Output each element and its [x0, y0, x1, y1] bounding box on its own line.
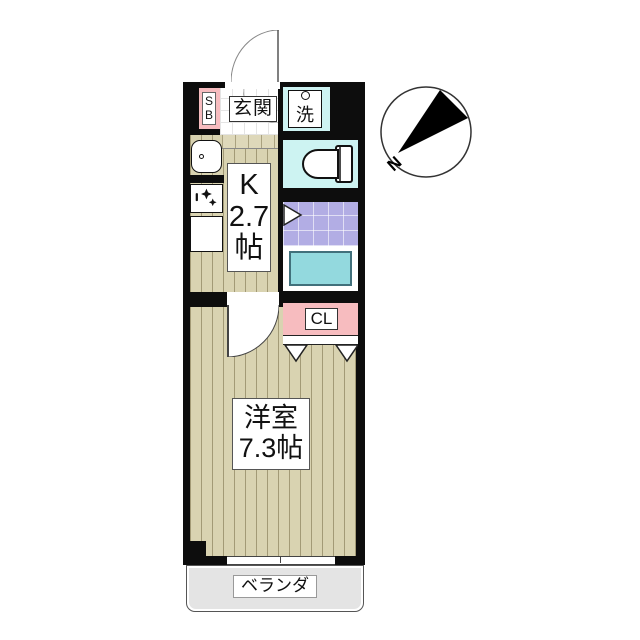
- kitchen-label-line3: 帖: [234, 233, 263, 265]
- bathroom: [283, 202, 358, 246]
- entrance-step: [222, 135, 278, 149]
- western-room-label: 洋室 7.3帖: [232, 398, 310, 470]
- toilet-room: [283, 140, 358, 188]
- shoe-box-label-line1: S: [205, 95, 213, 108]
- kitchen-label: K 2.7 帖: [227, 163, 271, 272]
- kitchen-divider-wall: [186, 175, 224, 183]
- laundry-label: 洗: [296, 101, 314, 127]
- toilet-icon: [293, 143, 355, 185]
- sink-drain-icon: [199, 154, 204, 159]
- closet-label: CL: [305, 308, 338, 330]
- kitchen-counter: [190, 216, 223, 252]
- bathtub-icon: [289, 251, 352, 286]
- bathroom-door-icon: [283, 204, 303, 226]
- kitchen-label-line1: K: [239, 170, 258, 202]
- floor-plan: S B 洗 K 2.7 帖: [0, 0, 640, 640]
- washing-machine-icon: 洗: [288, 90, 322, 128]
- shoe-box-label-line2: B: [205, 109, 213, 122]
- entry-doorway-gap: [225, 82, 280, 89]
- entry-door-icon: [231, 30, 279, 82]
- washing-machine-lid-icon: [301, 91, 310, 100]
- sink-icon: [191, 140, 222, 173]
- western-room-label-line2: 7.3帖: [239, 434, 304, 464]
- shoe-box-label: S B: [202, 92, 216, 125]
- closet-folding-door-icon: [283, 345, 358, 363]
- sliding-window-icon: [227, 556, 335, 565]
- room-door-icon: [227, 305, 279, 357]
- closet: CL: [283, 303, 358, 335]
- veranda-label: ベランダ: [233, 575, 317, 598]
- sliding-window-center-mullion: [280, 557, 281, 563]
- bathtub-area: [283, 246, 358, 291]
- shoe-box: S B: [199, 88, 220, 129]
- bottom-left-wall-notch: [190, 541, 206, 556]
- entrance-label: 玄関: [229, 96, 277, 122]
- veranda-label-text: ベランダ: [241, 577, 309, 596]
- kitchen-label-line2: 2.7: [229, 202, 269, 234]
- western-room-label-line1: 洋室: [244, 404, 298, 434]
- stove-burner-icon: [191, 185, 221, 211]
- stove-icon: [190, 184, 223, 213]
- closet-door-track: [283, 335, 358, 345]
- closet-label-text: CL: [311, 310, 333, 329]
- entrance-label-text: 玄関: [233, 99, 273, 120]
- compass-icon: N: [378, 85, 474, 181]
- veranda: ベランダ: [186, 565, 364, 612]
